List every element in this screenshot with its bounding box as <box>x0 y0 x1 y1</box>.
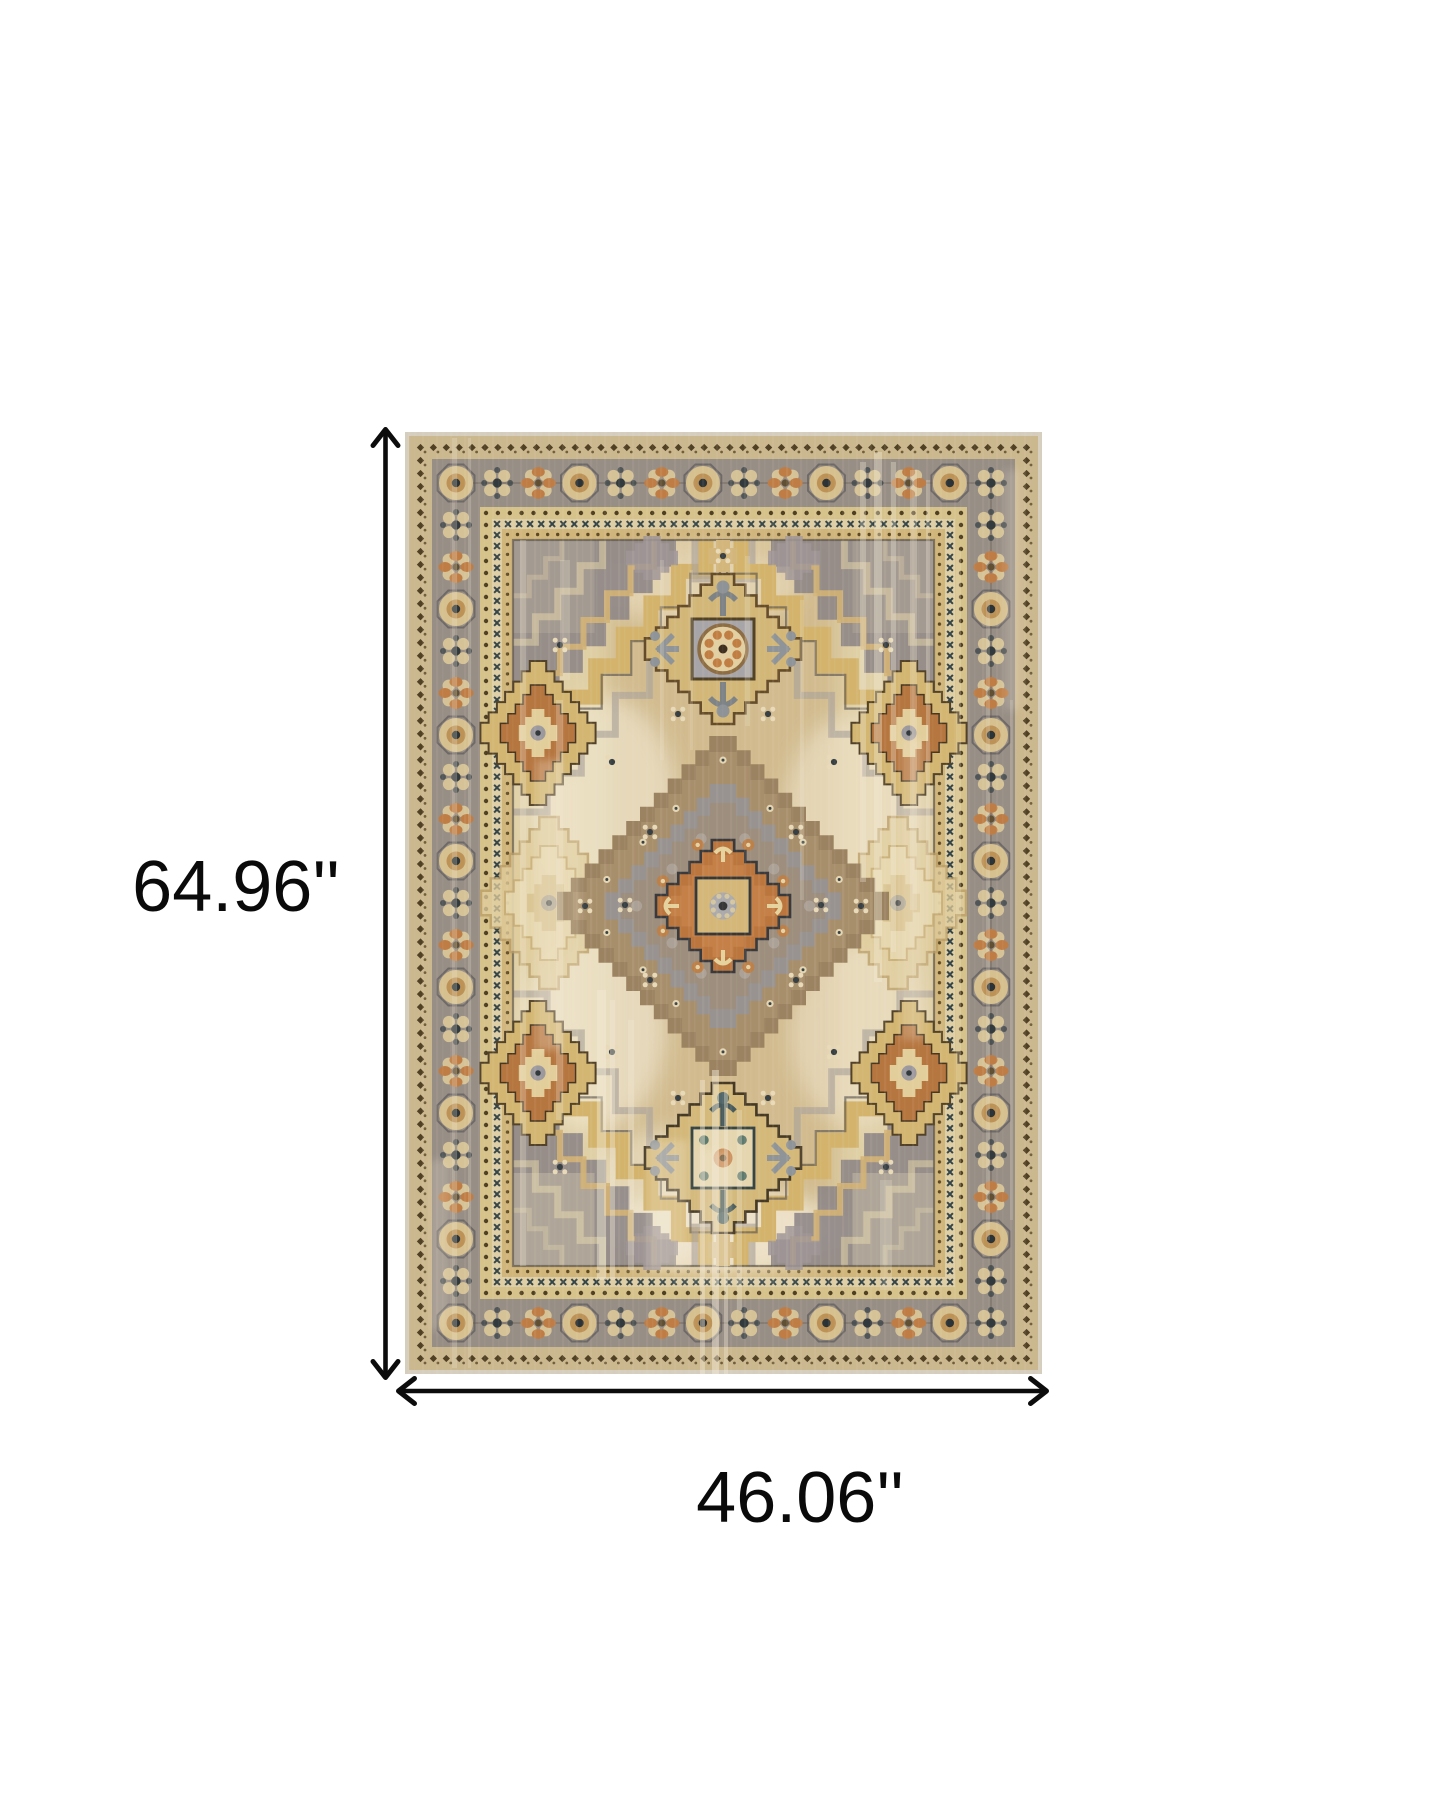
svg-text:46.06'': 46.06'' <box>696 1458 904 1538</box>
svg-text:64.96'': 64.96'' <box>132 847 340 927</box>
